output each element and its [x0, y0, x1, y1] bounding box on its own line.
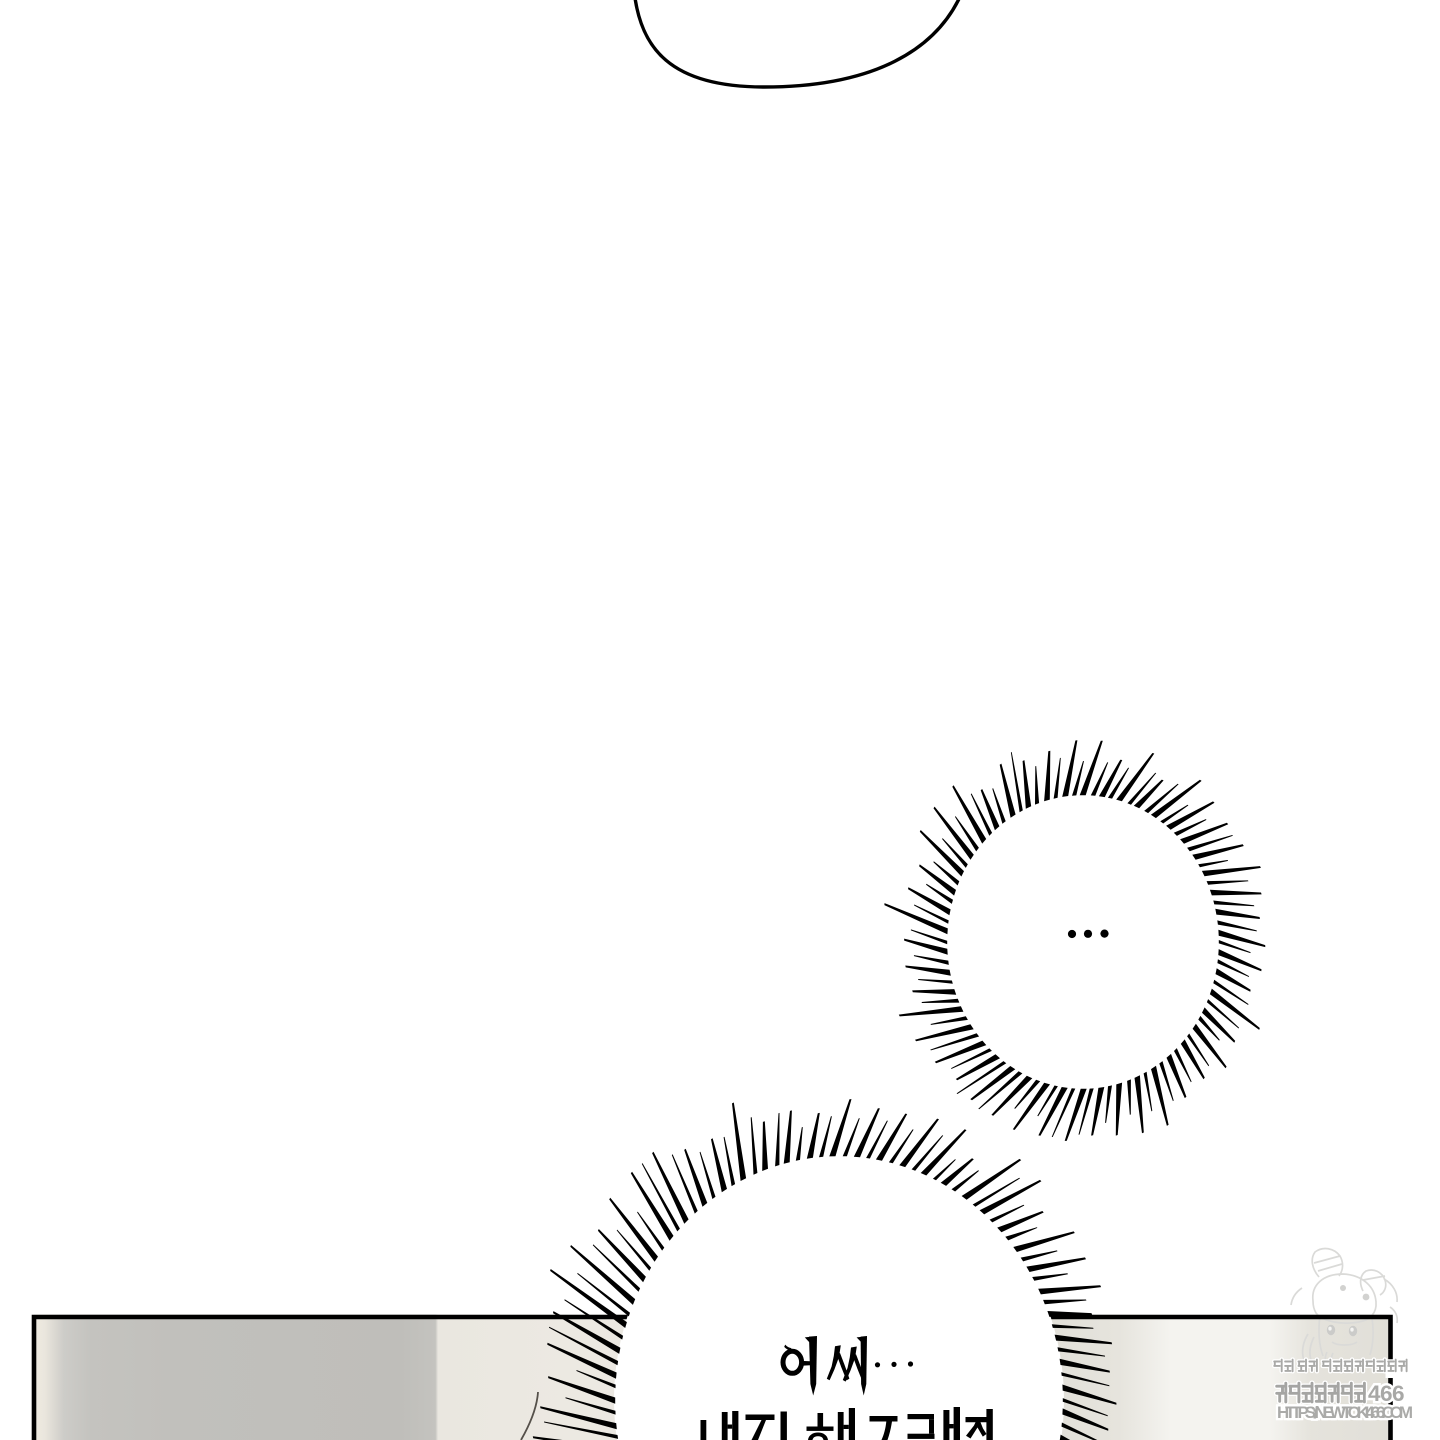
svg-text:HTTPS://NEWTOKI466.COM: HTTPS://NEWTOKI466.COM	[1277, 1403, 1413, 1422]
